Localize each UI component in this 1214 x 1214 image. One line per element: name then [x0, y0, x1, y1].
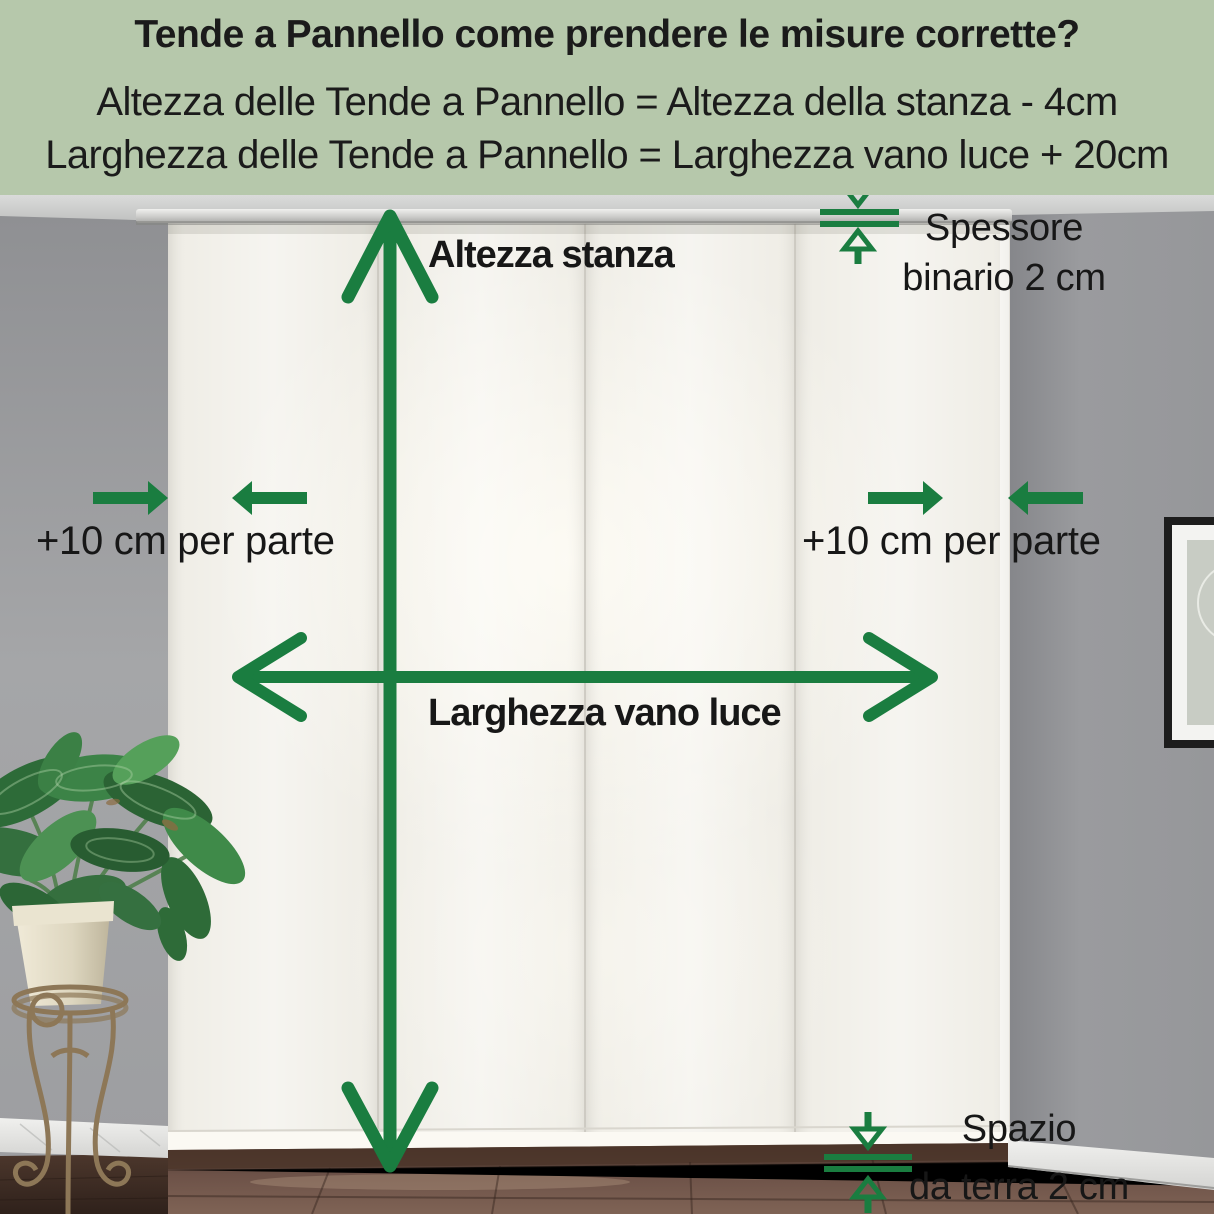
- potted-plant: [0, 725, 257, 1214]
- picture-frame: [1164, 517, 1214, 748]
- plant-stems: [24, 784, 200, 922]
- side-margin-right-label: +10 cm per parte: [802, 519, 1101, 564]
- side-margin-arrows-right: [868, 481, 1083, 515]
- floor-gap-label-line1: Spazio: [890, 1100, 1148, 1158]
- wood-floor: [0, 1154, 168, 1214]
- track-thickness-label: Spessore binario 2 cm: [876, 203, 1132, 303]
- formula-width: Larghezza delle Tende a Pannello = Largh…: [0, 133, 1214, 178]
- plant-stand: [14, 987, 129, 1214]
- curtain-panel-2: [378, 220, 585, 1158]
- page-title: Tende a Pannello come prendere le misure…: [0, 13, 1214, 57]
- header: Tende a Pannello come prendere le misure…: [0, 0, 1214, 195]
- panel-seams: [378, 224, 795, 1150]
- curtain-panel-4: [795, 220, 1010, 1158]
- side-margin-arrows-left: [93, 481, 307, 515]
- window-width-label: Larghezza vano luce: [428, 692, 781, 735]
- room-height-arrow: [348, 216, 432, 1166]
- side-margin-left-label: +10 cm per parte: [36, 519, 335, 564]
- infographic-panel-curtains: Tende a Pannello come prendere le misure…: [0, 0, 1214, 1214]
- plant-pot: [12, 901, 114, 1006]
- formula-height: Altezza delle Tende a Pannello = Altezza…: [0, 80, 1214, 125]
- track-thickness-label-line2: binario 2 cm: [876, 253, 1132, 303]
- plant-leaves: [0, 725, 257, 964]
- curtain-panel-1: [168, 220, 378, 1158]
- floor-gap-label-line2: da terra 2 cm: [890, 1158, 1148, 1214]
- right-wall: [1008, 211, 1214, 1214]
- room-height-label: Altezza stanza: [428, 234, 674, 277]
- track-thickness-label-line1: Spessore: [876, 203, 1132, 253]
- baseboard-left: [0, 1118, 168, 1158]
- left-wall: [0, 216, 168, 1214]
- curtain-panel-3: [585, 220, 795, 1158]
- floor-gap-label: Spazio da terra 2 cm: [890, 1100, 1148, 1214]
